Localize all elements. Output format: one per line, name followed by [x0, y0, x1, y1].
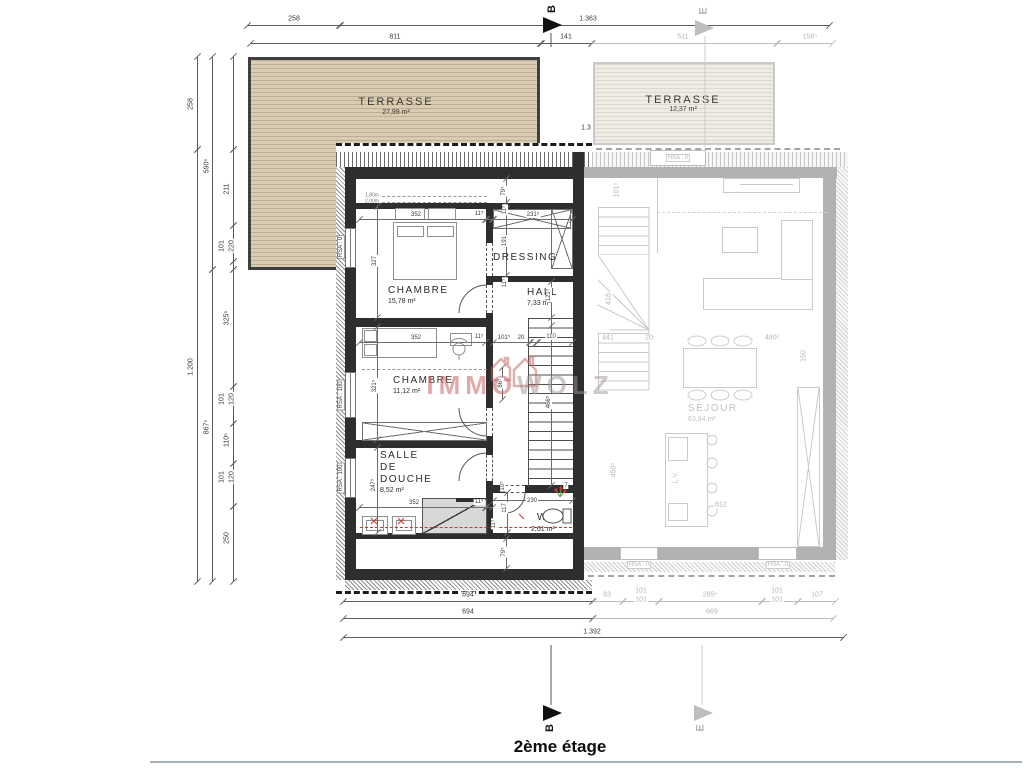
dim-line — [250, 43, 541, 44]
dim-line — [659, 601, 762, 602]
insulation-hatch-bottom-adj — [584, 562, 835, 572]
tv-line — [740, 184, 793, 185]
pillow — [364, 344, 377, 356]
dim-label: 101 — [770, 597, 784, 604]
dim-label: 220 — [229, 239, 236, 253]
room-label-hall: HALL — [527, 287, 558, 298]
dim-label: 101 — [634, 588, 648, 595]
dim-label: 101 — [219, 239, 226, 253]
dim-label: RSA : 100 — [337, 379, 345, 410]
dim-line — [541, 43, 592, 44]
dim-label: 211 — [224, 182, 231, 195]
window-left-2 — [345, 372, 356, 418]
dim-label: 325⁵ — [224, 310, 231, 327]
ceiling-line-adj — [657, 212, 827, 213]
terrace-main-label: TERRASSE — [336, 96, 456, 108]
dim-label: 441 — [601, 335, 615, 342]
dim-label: 466⁵ — [546, 395, 552, 410]
dim-label: 11⁵ — [491, 519, 497, 530]
pillow — [427, 226, 454, 237]
dim-label: 101 — [219, 470, 226, 484]
dim-line — [233, 424, 234, 464]
window-left-3 — [345, 458, 356, 498]
dim-label: 11⁵ — [474, 211, 485, 217]
desk — [450, 333, 472, 346]
dim-label: 669 — [705, 609, 719, 616]
dim-label: RSA : 0 — [337, 235, 345, 259]
terrace-adjacent-label: TERRASSE — [623, 94, 743, 106]
dim-label: 11⁵ — [474, 334, 485, 340]
coffee-table — [722, 227, 758, 253]
window-adj-bottom-1 — [620, 547, 658, 560]
section-e-bottom-label: E — [695, 724, 707, 731]
dim-line — [593, 618, 834, 619]
dim-label: 101⁵ — [497, 335, 512, 341]
dim-label: 7 — [563, 483, 568, 489]
dim-label: 107 — [810, 592, 824, 599]
room-label-sdd-2: DE — [380, 462, 397, 473]
dim-line — [359, 342, 486, 343]
dim-label: 694 — [461, 592, 475, 599]
dim-label: 352 — [410, 212, 422, 218]
staircase-adjacent-top — [598, 207, 649, 255]
sofa-seat — [703, 278, 813, 310]
dim-label: 811 — [388, 34, 401, 41]
dim-line — [593, 601, 623, 602]
dim-line — [493, 342, 530, 343]
tall-wardrobe — [797, 387, 820, 547]
dim-label: 101 — [634, 597, 648, 604]
dim-label: 110 — [545, 334, 557, 340]
dim-label: 79⁵ — [501, 546, 507, 557]
dim-label: 11⁵ — [474, 499, 485, 505]
insulation-hatch-top — [336, 152, 592, 167]
insulation-hatch-left — [336, 167, 345, 580]
dim-label: 110⁵ — [224, 432, 231, 448]
dim-line — [212, 57, 213, 270]
dim-label: 450⁵ — [611, 462, 618, 479]
dim-line — [197, 57, 198, 150]
pillow — [364, 330, 377, 342]
dim-label: HSA : 0 — [766, 561, 790, 569]
dim-label: 11⁵ — [502, 205, 508, 216]
wardrobe — [362, 422, 487, 441]
dim-label: 327 — [372, 255, 378, 267]
dim-label: 150 — [801, 349, 808, 363]
dim-label: 694 — [461, 609, 475, 616]
dim-label: 321⁵ — [372, 379, 378, 394]
sink-bowl — [396, 520, 412, 531]
dim-line — [247, 25, 340, 26]
room-label-sdd-1: SALLE — [380, 450, 419, 461]
dim-label: 79⁵ — [501, 185, 507, 196]
dim-label: 1.392 — [582, 629, 602, 636]
insulation-hatch-right-adj — [836, 167, 848, 560]
room-label-sdd-3: DOUCHE — [380, 474, 432, 485]
door-opening-chambre2 — [486, 408, 493, 436]
wall-stub — [657, 178, 658, 253]
island-sink — [668, 437, 688, 461]
dim-label: 101 — [219, 392, 226, 406]
room-label-chambre1: CHAMBRE — [388, 285, 449, 296]
room-area-chambre1: 15,78 m² — [388, 298, 416, 305]
room-label-dressing: DRESSING — [493, 252, 557, 263]
dim-label: 250 — [224, 531, 231, 545]
dim-label: 120 — [229, 470, 236, 484]
wall — [486, 209, 493, 243]
room-label-wc: WC — [537, 512, 557, 523]
wall — [345, 569, 584, 580]
door-opening-chambre1 — [486, 285, 493, 313]
dim-label: RSA : 100 — [337, 462, 345, 493]
section-e-top-label: E — [698, 7, 710, 14]
dim-line — [359, 507, 486, 508]
terrace-main-area: 27,99 m² — [336, 109, 456, 116]
dim-label: 20 — [517, 335, 526, 341]
wall — [486, 276, 493, 285]
opening-dressing — [486, 243, 493, 276]
dim-label: 231⁵ — [526, 212, 541, 218]
dim-label: 590⁵ — [204, 158, 211, 175]
dim-label: HSA : 0 — [666, 154, 690, 162]
door-opening-sdd — [486, 455, 493, 481]
dim-line — [197, 150, 198, 582]
dim-line — [359, 219, 486, 220]
dim-line — [493, 219, 573, 220]
dim-label: 867⁵ — [204, 419, 211, 436]
dim-label: 1.3 — [580, 125, 592, 132]
dim-line — [343, 601, 593, 602]
roof-dash-adj — [596, 148, 840, 150]
section-e-bottom-marker — [694, 645, 713, 721]
dim-label: 117 — [502, 502, 508, 514]
tv-board — [723, 178, 800, 193]
dim-label: 511 — [676, 34, 689, 41]
wall — [345, 167, 584, 179]
room-area-sejour: 63,84 m² — [688, 416, 716, 423]
floor-plan: TERRASSE 27,99 m² TERRASSE 12,37 m² CHAM… — [0, 0, 1024, 768]
dim-line — [233, 57, 234, 150]
title-rule — [150, 761, 1022, 763]
dim-line — [340, 25, 830, 26]
dim-label: 121⁵ — [546, 288, 552, 303]
dim-line — [233, 270, 234, 387]
dim-label: 2,00m — [364, 200, 380, 205]
dim-label: 86⁵ — [498, 377, 504, 388]
dim-label: 101 — [770, 588, 784, 595]
dim-line — [343, 618, 593, 619]
dim-label: 230 — [526, 498, 538, 504]
terrace-adjacent-area: 12,37 m² — [623, 106, 743, 113]
insulation-hatch-bottom — [345, 580, 592, 590]
dim-label: 141 — [559, 34, 573, 41]
dim-label: 612 — [714, 502, 728, 509]
dim-line — [798, 601, 836, 602]
dim-label: 258 — [287, 16, 301, 23]
island-hob — [668, 503, 688, 521]
dim-label: 258 — [188, 97, 195, 111]
roof-dash-bottom-adj — [588, 575, 835, 577]
sofa-chaise — [781, 220, 813, 280]
dim-label: 11⁵ — [502, 278, 508, 289]
dim-label: 101⁵ — [614, 182, 621, 199]
adjacent-wall — [823, 167, 836, 560]
dim-label: 10⁵ — [500, 480, 506, 491]
section-b-top-label: B — [546, 5, 558, 13]
dim-label: 247⁵ — [371, 478, 377, 493]
window-left-1 — [345, 228, 356, 268]
dim-label: 352 — [410, 335, 422, 341]
dim-label: 480² — [764, 335, 780, 342]
dim-label: 1.200 — [188, 357, 195, 377]
dim-label: 285⁵ — [702, 592, 719, 599]
room-area-sdd: 8,52 m² — [380, 487, 404, 494]
section-b-bottom-marker — [543, 645, 562, 721]
ceiling-line-180 — [382, 196, 487, 197]
dim-label: 352 — [408, 500, 420, 506]
room-label-sejour: SÉJOUR — [688, 403, 738, 414]
dim-line — [592, 43, 777, 44]
dim-line — [343, 637, 844, 638]
dim-line — [486, 507, 493, 508]
adjacent-wall — [584, 167, 837, 178]
dim-label: 1.363 — [578, 16, 598, 23]
dim-line — [212, 270, 213, 582]
roof-dash — [336, 143, 592, 146]
watermark-part2: WOLZ — [517, 370, 614, 400]
dim-label: 418 — [606, 292, 613, 306]
dim-line — [233, 150, 234, 226]
window-adj-bottom-2 — [758, 547, 797, 560]
dim-label: 20 — [644, 335, 654, 342]
dim-line — [233, 507, 234, 582]
ceiling-line-200 — [382, 202, 487, 203]
page-title: 2ème étage — [420, 737, 700, 757]
watermark: IMMOWOLZ — [402, 370, 638, 401]
section-b-bottom-label: B — [544, 724, 556, 732]
dining-table — [683, 348, 757, 388]
dim-label: 158⁵ — [802, 34, 819, 41]
dim-label: 120 — [229, 392, 236, 406]
room-area-wc: 2,61 m² — [531, 526, 555, 533]
dim-line — [537, 342, 573, 343]
dim-label: 83 — [602, 592, 612, 599]
dim-line — [377, 448, 378, 533]
dim-line — [777, 43, 833, 44]
dim-label: 191 — [502, 235, 508, 247]
insulation-hatch-top-adj — [592, 152, 848, 167]
island-label: L.V. — [672, 472, 679, 484]
pillow — [397, 226, 424, 237]
dim-label: HSA : 0 — [627, 561, 651, 569]
